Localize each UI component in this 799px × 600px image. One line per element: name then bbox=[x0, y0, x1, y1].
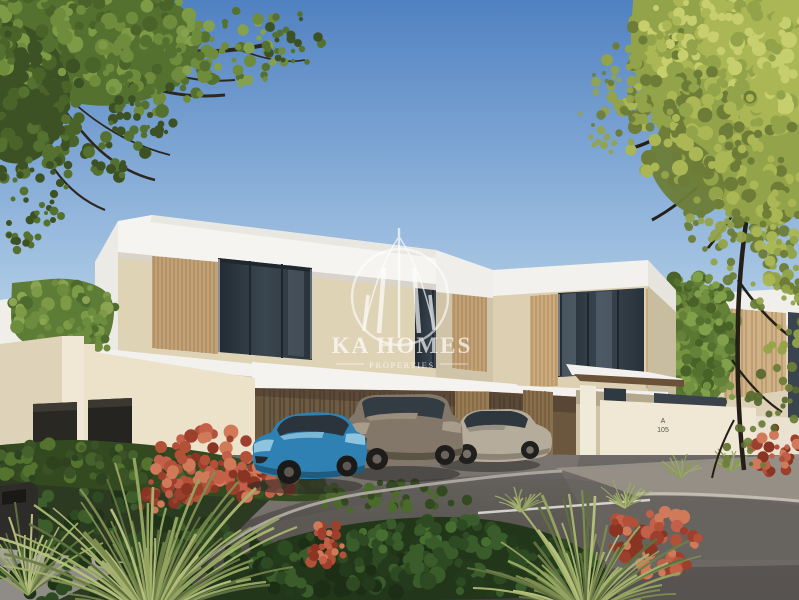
svg-text:PROPERTIES: PROPERTIES bbox=[369, 360, 435, 370]
svg-text:KA HOMES: KA HOMES bbox=[332, 333, 473, 358]
svg-text:A: A bbox=[661, 418, 666, 425]
svg-text:105: 105 bbox=[657, 427, 669, 434]
